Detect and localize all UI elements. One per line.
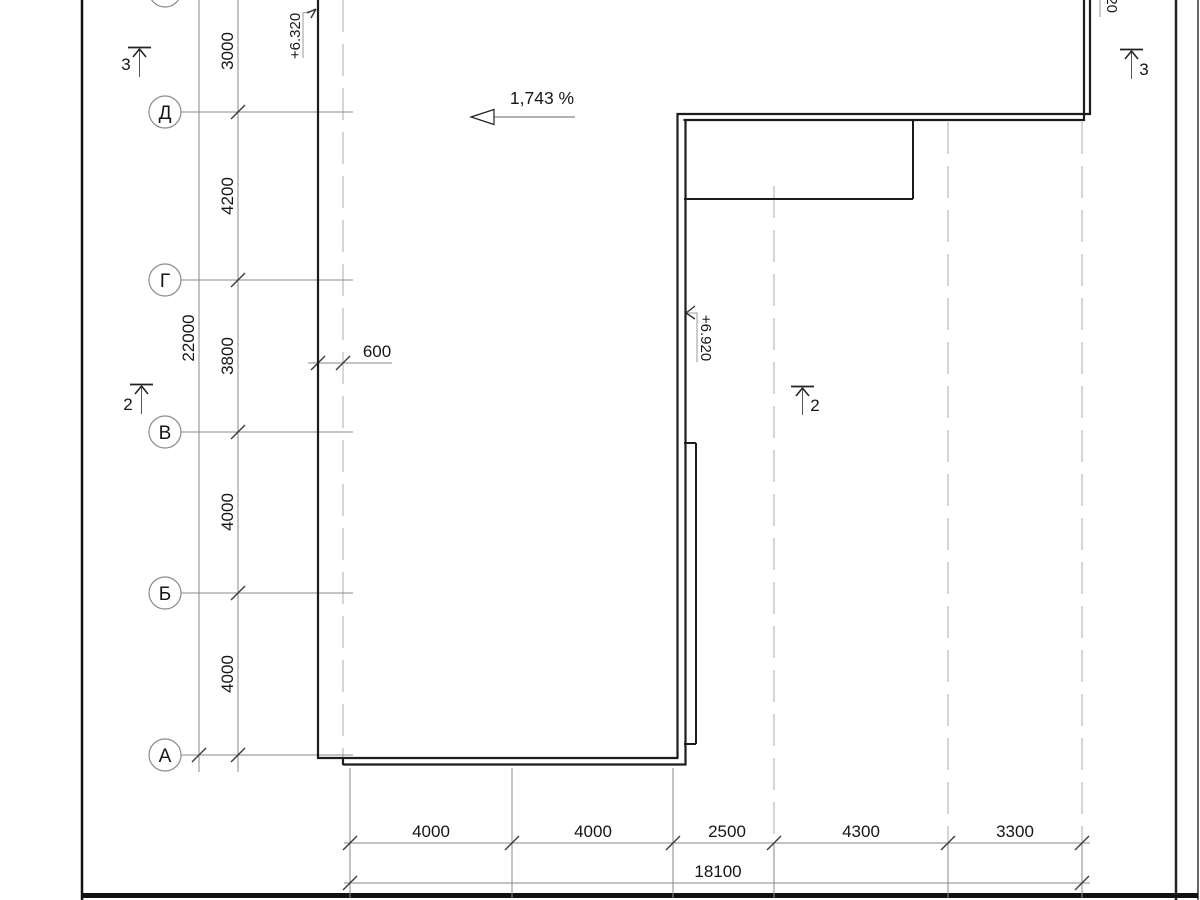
hdim-4300: 4300	[842, 822, 880, 841]
section-marks: 3 2 2 3	[121, 48, 1148, 416]
elevation-marks: +6.320 +6.920 20	[287, 0, 1120, 362]
elev-middle-leader	[686, 313, 697, 362]
elev-left-label: +6.320	[287, 13, 304, 59]
grid-label-g: Г	[160, 271, 170, 292]
horizontal-dimension-chain: 4000 4000 2500 4300 3300 18100	[343, 768, 1090, 898]
roof-notch-rect	[684, 121, 913, 199]
drawing-sheet: Д Г В Б А 3000 4200 3800 4000 4000 22000…	[0, 0, 1200, 900]
hdim-3300: 3300	[996, 822, 1034, 841]
slope-arrow-head-icon	[471, 110, 494, 125]
elev-topright-partial-label: 20	[1103, 0, 1120, 13]
row-grid-lines	[181, 112, 353, 755]
vdim-4200: 4200	[218, 177, 237, 215]
section-label: 3	[121, 55, 130, 74]
roof-plan-drawing: Д Г В Б А 3000 4200 3800 4000 4000 22000…	[0, 0, 1200, 900]
building-outline	[317, 0, 1091, 765]
vdim-4000-a: 4000	[218, 493, 237, 531]
grid-bubble-top-cut	[149, 0, 181, 7]
dashed-grid-axes	[343, 0, 1082, 843]
hdim-4000-b: 4000	[574, 822, 612, 841]
hdim-4000-a: 4000	[412, 822, 450, 841]
elev-middle-label: +6.920	[697, 315, 714, 361]
offset-dimension-600: 600	[308, 342, 392, 370]
hdim-2500: 2500	[708, 822, 746, 841]
slope-label: 1,743 %	[510, 88, 574, 108]
section-label: 2	[123, 395, 132, 414]
grid-label-b: Б	[159, 584, 171, 605]
grid-label-v: В	[159, 423, 172, 444]
roof-edge-lines	[317, 0, 1091, 765]
grid-label-d: Д	[159, 103, 172, 124]
grid-bubbles: Д Г В Б А	[149, 0, 181, 771]
section-label: 3	[1139, 60, 1148, 79]
row-lines	[181, 112, 353, 755]
vdim-3800: 3800	[218, 337, 237, 375]
section-label: 2	[810, 396, 819, 415]
vdim-overall-22000: 22000	[179, 314, 198, 361]
elev-left-leader	[303, 10, 316, 58]
vdim-3000: 3000	[218, 32, 237, 70]
section-mark-2-left: 2	[123, 385, 153, 415]
elev-left-arrow-icon	[307, 9, 316, 18]
vdim-4000-b: 4000	[218, 655, 237, 693]
offset-dim-label: 600	[363, 342, 391, 361]
slope-annotation: 1,743 %	[471, 88, 575, 125]
grid-label-a: А	[159, 746, 172, 767]
section-mark-2-middle: 2	[791, 387, 820, 416]
hdim-overall-18100: 18100	[694, 862, 741, 881]
section-mark-3-right: 3	[1120, 50, 1149, 80]
vertical-dimension-chain: 3000 4200 3800 4000 4000 22000	[179, 0, 245, 772]
section-mark-3-left: 3	[121, 48, 151, 78]
